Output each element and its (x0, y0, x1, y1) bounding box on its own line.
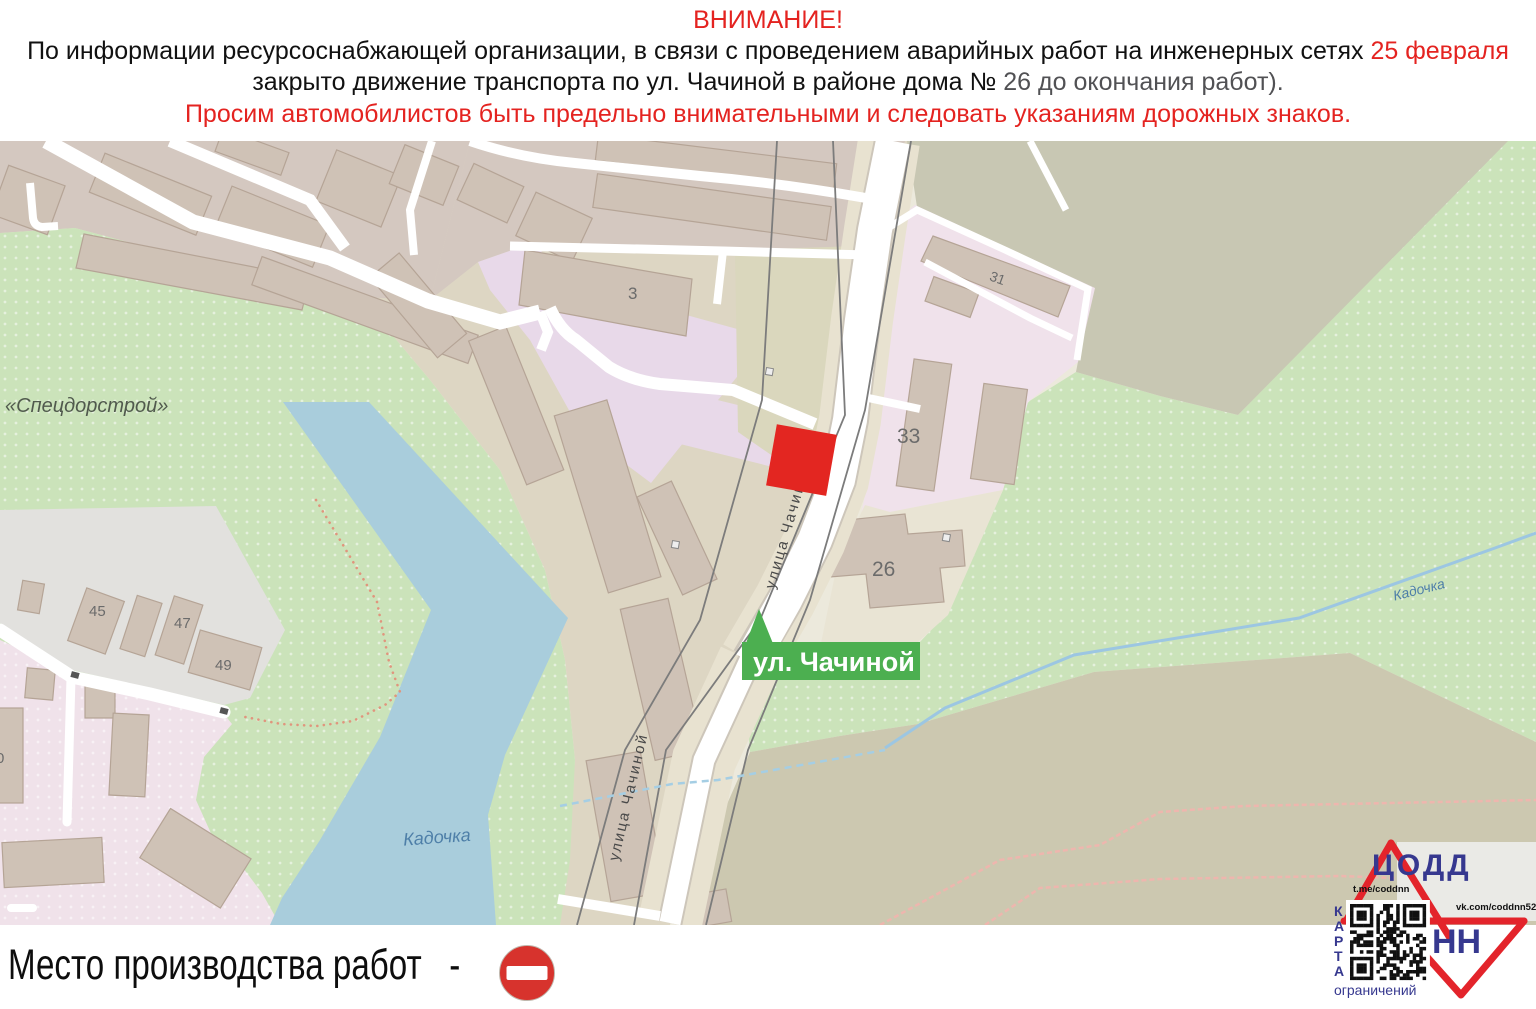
svg-text:ограничений: ограничений (1334, 982, 1416, 998)
svg-text:49: 49 (215, 657, 232, 674)
svg-text:45: 45 (89, 603, 106, 620)
svg-text:0: 0 (0, 750, 4, 767)
svg-text:3: 3 (628, 284, 637, 303)
svg-text:ЦОДД: ЦОДД (1372, 849, 1472, 882)
svg-text:А: А (1334, 918, 1344, 934)
svg-text:47: 47 (174, 615, 191, 632)
svg-text:Т: Т (1334, 948, 1343, 964)
svg-text:26: 26 (872, 558, 895, 581)
svg-text:А: А (1334, 963, 1344, 979)
svg-text:t.me/coddnn: t.me/coddnn (1353, 884, 1410, 895)
svg-text:К: К (1334, 903, 1343, 919)
svg-text:«Спецдорстрой»: «Спецдорстрой» (5, 395, 168, 417)
svg-text:Р: Р (1334, 933, 1343, 949)
svg-text:vk.com/coddnn52: vk.com/coddnn52 (1456, 902, 1536, 913)
svg-text:33: 33 (897, 425, 920, 448)
svg-text:НН: НН (1432, 923, 1481, 961)
svg-text:ул. Чачиной: ул. Чачиной (753, 647, 915, 677)
